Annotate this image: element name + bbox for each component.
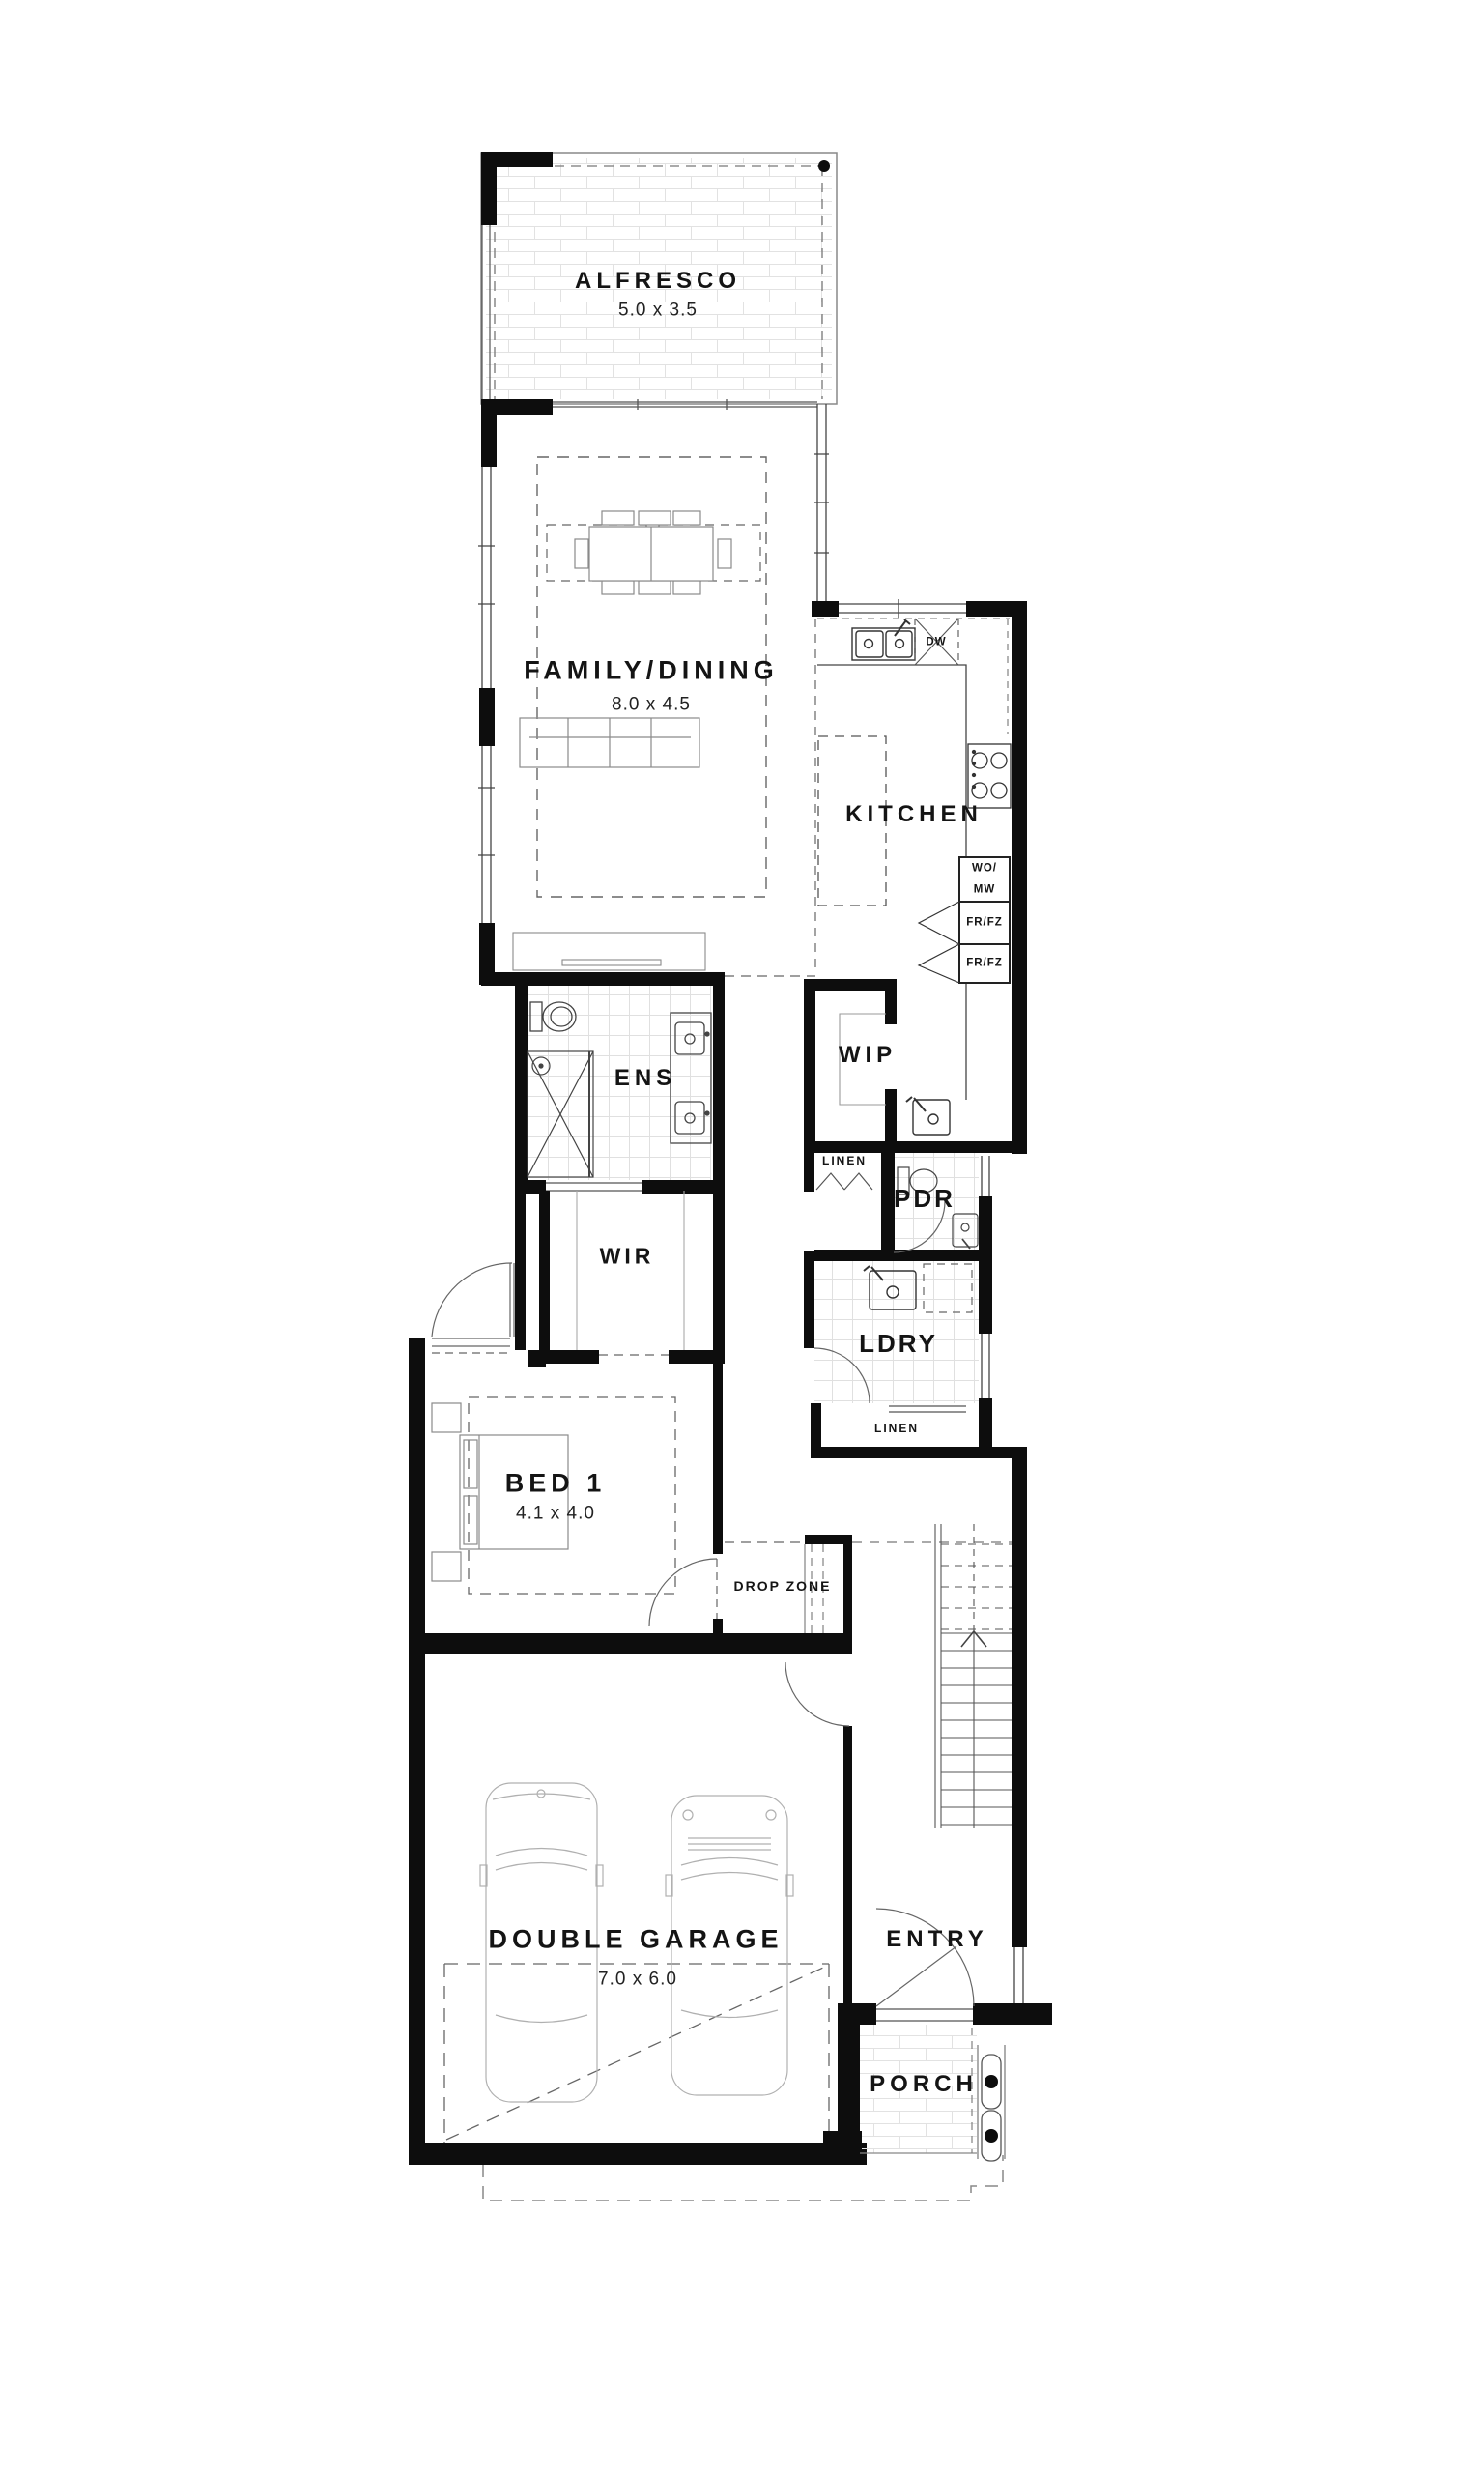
room-dims-bed1: 4.1 x 4.0 [516,1505,595,1523]
room-label-garage: DOUBLE GARAGE [488,1927,783,1953]
appliance-label-dishwasher: DW [926,637,946,648]
room-label-family-dining: FAMILY/DINING [524,658,779,684]
east-wall [1012,1454,1027,2007]
kitchen-area [812,599,1027,1154]
room-label-porch: PORCH [870,2073,978,2096]
room-label-wir: WIR [600,1246,655,1268]
room-label-linen-upper: LINEN [822,1155,867,1166]
room-label-ens: ENS [614,1067,676,1090]
dining-table [547,511,760,594]
wir-area [515,1191,725,1364]
room-label-alfresco: ALFRESCO [575,270,741,293]
room-label-bed1: BED 1 [505,1471,607,1497]
room-label-kitchen: KITCHEN [845,803,983,826]
room-dims-family-dining: 8.0 x 4.5 [612,696,691,714]
room-label-pdr: PDR [894,1186,956,1211]
room-label-entry: ENTRY [886,1928,987,1951]
garage-area [409,1633,867,2165]
secondary-sink [906,1097,950,1135]
family-dining-area [478,399,829,986]
cooktop [968,744,1011,808]
appliance-label-wall-oven: WO/ [972,863,997,875]
linen-upper-area [804,1153,895,1254]
kitchen-sink [852,619,915,660]
porch-posts [982,2055,1001,2161]
wall [897,1141,1027,1153]
bed1-door [432,1263,514,1353]
appliance-label-fridge-1: FR/FZ [966,917,1003,929]
floor-plan: ALFRESCO 5.0 x 3.5 FAMILY/DINING 8.0 x 4… [0,0,1484,2474]
appliance-label-microwave: MW [974,884,995,896]
room-dims-garage: 7.0 x 6.0 [598,1971,677,1989]
room-label-wip: WIP [839,1044,897,1067]
stairs [852,1524,1012,1828]
appliance-label-fridge-2: FR/FZ [966,958,1003,969]
room-label-ldry: LDRY [859,1331,938,1356]
front-door-leaf [876,1946,956,2006]
room-dims-alfresco: 5.0 x 3.5 [618,302,698,320]
room-label-drop-zone: DROP ZONE [734,1579,832,1593]
sofa [520,718,699,767]
room-label-linen-lower: LINEN [874,1423,919,1434]
front-door-arc [876,1909,974,2006]
floor-plan-drawing [0,0,1484,2474]
tv-cabinet [513,933,705,970]
